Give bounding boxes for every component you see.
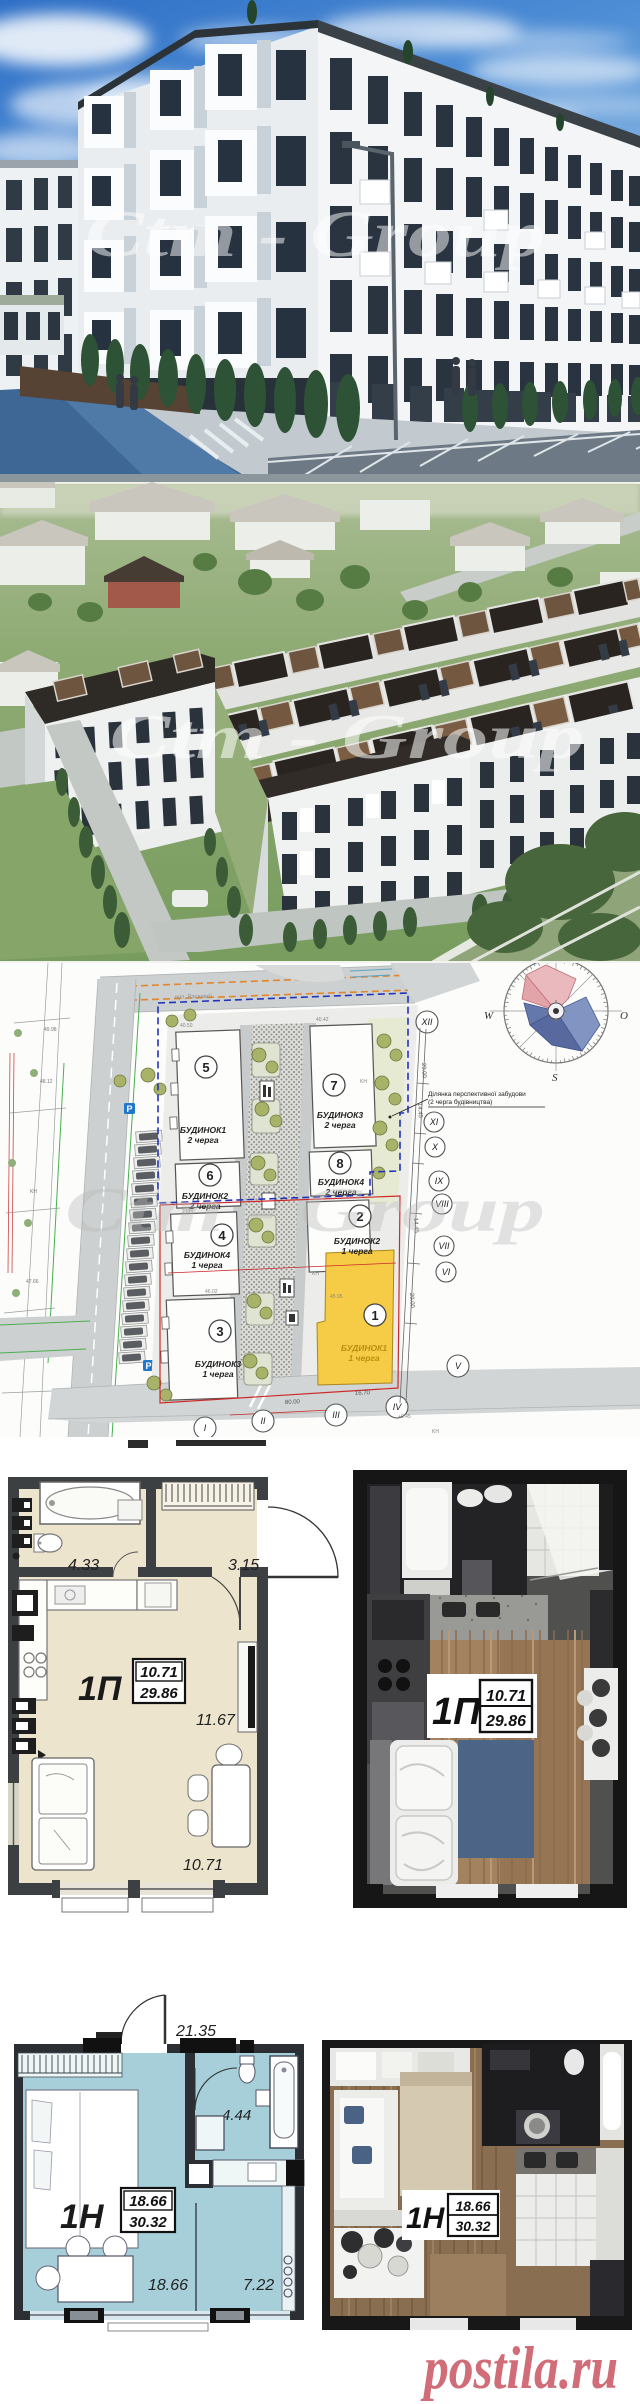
svg-text:2 черга: 2 черга <box>323 1120 355 1130</box>
svg-text:1Н: 1Н <box>60 2198 105 2236</box>
svg-text:III: III <box>332 1410 340 1420</box>
svg-text:VI: VI <box>442 1267 451 1277</box>
svg-text:4.44: 4.44 <box>222 2107 251 2124</box>
svg-text:БУДИНОК4: БУДИНОК4 <box>184 1250 230 1260</box>
svg-text:47.66: 47.66 <box>26 1279 39 1285</box>
svg-text:БУДИНОК1: БУДИНОК1 <box>341 1343 387 1353</box>
svg-text:16.70: 16.70 <box>355 1390 371 1397</box>
svg-text:KH: KH <box>312 1271 319 1277</box>
svg-text:1 черга: 1 черга <box>191 1260 222 1270</box>
svg-text:P: P <box>127 1104 133 1114</box>
svg-text:БУДИНОК1: БУДИНОК1 <box>180 1125 226 1135</box>
svg-text:Ctm - Group: Ctm - Group <box>85 198 545 271</box>
svg-text:30.32: 30.32 <box>129 2214 167 2231</box>
svg-text:1П: 1П <box>78 1670 123 1708</box>
svg-text:KH: KH <box>30 1189 37 1195</box>
svg-text:10.71: 10.71 <box>486 1688 526 1705</box>
svg-text:II: II <box>260 1416 266 1426</box>
svg-text:XII: XII <box>420 1017 433 1027</box>
svg-text:IV: IV <box>393 1402 403 1412</box>
svg-text:Ctm - Group: Ctm - Group <box>110 701 585 772</box>
svg-text:11.67: 11.67 <box>196 1712 236 1729</box>
svg-text:X: X <box>431 1142 439 1152</box>
svg-text:P: P <box>146 1361 152 1371</box>
svg-text:Ділянка перспективної забудови: Ділянка перспективної забудови <box>428 1090 526 1098</box>
svg-text:18.66: 18.66 <box>129 2193 167 2210</box>
svg-text:18.66: 18.66 <box>148 2277 188 2294</box>
svg-text:БУДИНОК3: БУДИНОК3 <box>195 1359 241 1369</box>
svg-text:1 черга: 1 черга <box>348 1353 379 1363</box>
svg-text:80.00: 80.00 <box>285 1399 301 1406</box>
svg-text:48.12: 48.12 <box>40 1079 53 1085</box>
svg-text:45.95: 45.95 <box>330 1294 343 1300</box>
svg-text:+0.45: +0.45 <box>398 1414 411 1420</box>
svg-text:1 черга: 1 черга <box>341 1246 372 1256</box>
svg-text:БУДИНОК3: БУДИНОК3 <box>317 1110 363 1120</box>
svg-text:2 черга: 2 черга <box>186 1135 218 1145</box>
svg-text:46.02: 46.02 <box>205 1289 218 1295</box>
svg-text:40.50: 40.50 <box>180 1023 193 1029</box>
svg-text:1: 1 <box>371 1308 378 1323</box>
svg-text:1Н: 1Н <box>406 2202 446 2235</box>
svg-text:49.98: 49.98 <box>44 1027 57 1033</box>
svg-text:7.22: 7.22 <box>243 2277 274 2294</box>
svg-text:Ctm - Group: Ctm - Group <box>65 1174 545 1245</box>
svg-text:30.32: 30.32 <box>455 2218 490 2234</box>
svg-text:21.35: 21.35 <box>175 2023 216 2040</box>
svg-text:S: S <box>552 1072 558 1084</box>
svg-text:3.15: 3.15 <box>228 1557 259 1574</box>
svg-text:(2 черга будівництва): (2 черга будівництва) <box>428 1098 492 1106</box>
svg-text:1П: 1П <box>432 1691 481 1733</box>
svg-text:V: V <box>455 1361 462 1371</box>
svg-text:10.71: 10.71 <box>183 1857 223 1874</box>
svg-text:XI: XI <box>429 1117 439 1127</box>
svg-text:W: W <box>484 1010 494 1022</box>
svg-text:40.42: 40.42 <box>316 1017 329 1023</box>
svg-text:8: 8 <box>336 1156 343 1171</box>
svg-text:18.66: 18.66 <box>455 2198 490 2214</box>
svg-text:29.00: 29.00 <box>420 1063 427 1079</box>
svg-text:KH: KH <box>360 1079 367 1085</box>
svg-text:postila.ru: postila.ru <box>420 2335 618 2401</box>
svg-text:3: 3 <box>216 1324 223 1339</box>
svg-text:10.71: 10.71 <box>140 1664 178 1681</box>
svg-text:7: 7 <box>330 1078 337 1093</box>
svg-text:4.33: 4.33 <box>68 1557 99 1574</box>
svg-text:14.45: 14.45 <box>416 1103 423 1119</box>
svg-text:O: O <box>620 1010 628 1022</box>
svg-text:KH: KH <box>432 1429 439 1435</box>
svg-text:29.86: 29.86 <box>485 1713 526 1730</box>
svg-text:5: 5 <box>202 1060 209 1075</box>
svg-text:29.00: 29.00 <box>408 1293 415 1309</box>
svg-text:29.86: 29.86 <box>139 1685 178 1702</box>
svg-text:1 черга: 1 черга <box>202 1369 233 1379</box>
